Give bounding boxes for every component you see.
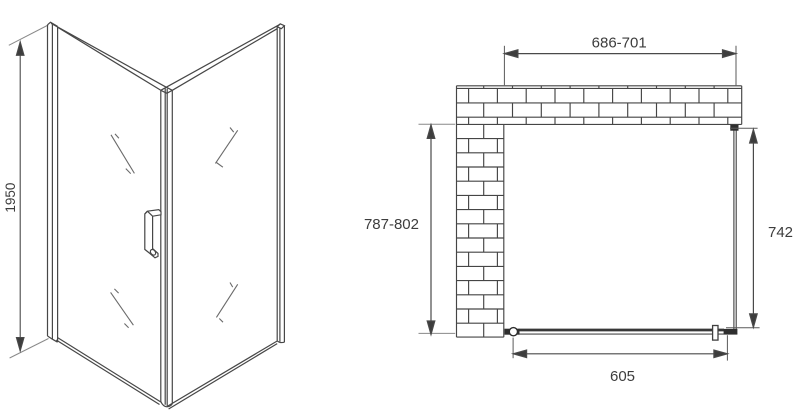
svg-text:1950: 1950 bbox=[3, 183, 18, 213]
svg-text:686-701: 686-701 bbox=[592, 35, 647, 52]
svg-text:787-802: 787-802 bbox=[364, 216, 419, 233]
svg-text:742: 742 bbox=[768, 224, 793, 241]
svg-text:605: 605 bbox=[610, 368, 635, 385]
